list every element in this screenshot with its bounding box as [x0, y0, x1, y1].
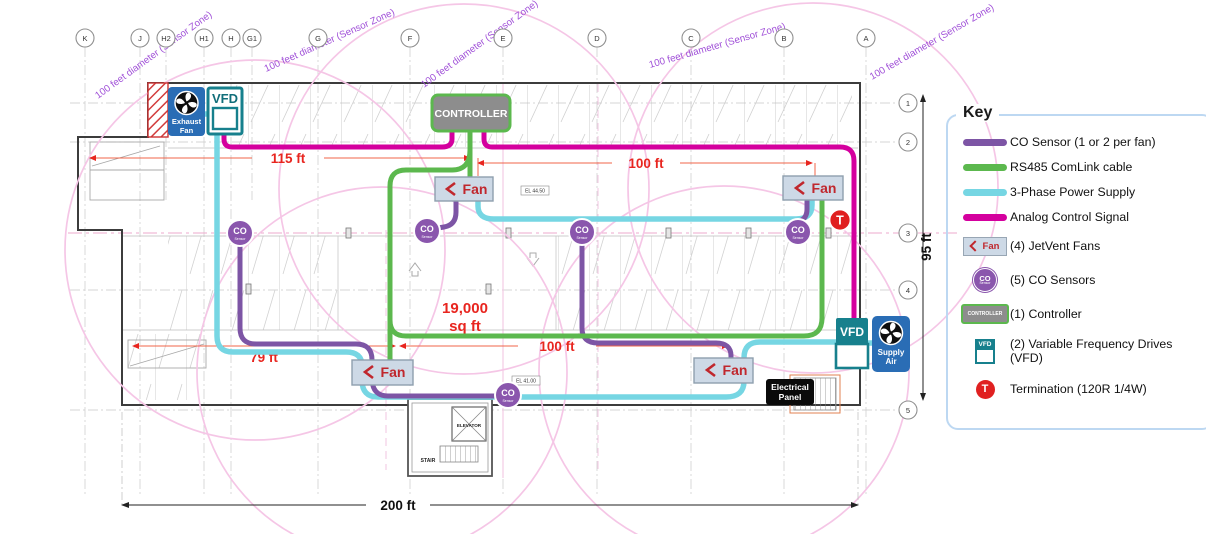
supply-air-unit: Supply Air: [872, 316, 910, 372]
svg-text:Panel: Panel: [779, 392, 802, 402]
svg-text:A: A: [863, 34, 868, 43]
analog-swatch: [963, 214, 1007, 221]
svg-text:100 feet diameter (Sensor Zone: 100 feet diameter (Sensor Zone): [419, 0, 540, 90]
vfd-box-1: VFD: [208, 88, 242, 134]
svg-text:EL 41.00: EL 41.00: [516, 379, 536, 385]
svg-text:H: H: [228, 34, 233, 43]
svg-text:CO: CO: [575, 225, 589, 235]
fan-icon: Fan: [963, 237, 1007, 256]
svg-text:H2: H2: [161, 34, 171, 43]
legend-item-vfd: VFD (2) Variable Frequency Drives (VFD): [960, 330, 1206, 372]
svg-text:Air: Air: [885, 357, 896, 366]
svg-text:F: F: [408, 34, 413, 43]
jetvent-fan-3: Fan: [352, 360, 413, 385]
traffic-arrow-icons: [409, 253, 539, 276]
svg-text:CONTROLLER: CONTROLLER: [435, 108, 508, 120]
electrical-panel: Electrical Panel: [766, 379, 814, 405]
exhaust-shaft: [148, 83, 168, 137]
legend-item-analog: Analog Control Signal: [960, 205, 1206, 230]
svg-text:Fan: Fan: [723, 362, 748, 378]
svg-text:2: 2: [906, 138, 910, 147]
svg-text:Sensor: Sensor: [234, 237, 246, 241]
controller-icon: CONTROLLER: [961, 304, 1009, 324]
svg-text:4: 4: [906, 286, 910, 295]
area-label-line2: sq ft: [449, 318, 481, 335]
svg-text:G1: G1: [247, 34, 257, 43]
svg-text:5: 5: [906, 406, 910, 415]
dim-95ft: 95 ft: [919, 233, 934, 261]
svg-text:J: J: [138, 34, 142, 43]
svg-text:CO: CO: [501, 388, 515, 398]
termination-icon: T: [976, 380, 995, 399]
co-sensor-5: CO Sensor: [495, 382, 521, 408]
svg-text:1: 1: [906, 99, 910, 108]
legend-item-co-cable: CO Sensor (1 or 2 per fan): [960, 130, 1206, 155]
svg-text:100 feet diameter (Sensor Zone: 100 feet diameter (Sensor Zone): [868, 2, 996, 82]
svg-text:Fan: Fan: [463, 181, 488, 197]
svg-text:EL 44.50: EL 44.50: [525, 189, 545, 195]
co-cable-swatch: [963, 139, 1007, 146]
svg-text:Sensor: Sensor: [576, 236, 588, 240]
key-panel: Key CO Sensor (1 or 2 per fan) RS485 Com…: [946, 114, 1206, 430]
jetvent-fan-4: Fan: [694, 358, 753, 383]
rs485-swatch: [963, 164, 1007, 171]
co-sensor-icon: COSensor: [973, 268, 997, 292]
vfd-icon: VFD: [975, 339, 995, 364]
svg-text:T: T: [836, 214, 844, 228]
dim-100ft-top: 100 ft: [628, 156, 664, 171]
termination-resistor: T: [830, 210, 851, 231]
elevator-stair-core: ELEVATOR STAIR: [408, 399, 492, 476]
co-sensor-4: CO Sensor: [785, 219, 811, 245]
dim-115ft: 115 ft: [271, 151, 306, 166]
legend-item-power: 3-Phase Power Supply: [960, 180, 1206, 205]
svg-text:Electrical: Electrical: [771, 382, 809, 392]
vfd-box-2: VFD: [836, 318, 868, 368]
dim-200ft: 200 ft: [380, 498, 416, 513]
svg-text:Supply: Supply: [878, 348, 905, 357]
legend-item-termination: T Termination (120R 1/4W): [960, 372, 1206, 406]
svg-text:CO: CO: [791, 225, 805, 235]
svg-text:K: K: [82, 34, 87, 43]
svg-text:VFD: VFD: [212, 91, 238, 106]
svg-text:E: E: [500, 34, 505, 43]
stair-label: STAIR: [421, 458, 436, 464]
ventilation-plan-page: ELEVATOR STAIR 100 feet diameter (Sensor…: [0, 0, 1206, 534]
svg-text:Sensor: Sensor: [792, 236, 804, 240]
power-swatch: [963, 189, 1007, 196]
svg-text:B: B: [781, 34, 786, 43]
svg-text:G: G: [315, 34, 321, 43]
svg-text:VFD: VFD: [840, 325, 864, 339]
svg-text:Sensor: Sensor: [421, 235, 433, 239]
co-sensor-3: CO Sensor: [569, 219, 595, 245]
svg-text:D: D: [594, 34, 600, 43]
key-title: Key: [956, 104, 999, 122]
chevron-left-icon: [969, 240, 980, 251]
area-label-line1: 19,000: [442, 300, 488, 317]
co-sensor-1: CO Sensor: [227, 220, 253, 246]
dim-100ft-bottom: 100 ft: [539, 339, 575, 354]
svg-text:100 feet diameter (Sensor Zone: 100 feet diameter (Sensor Zone): [263, 7, 397, 75]
svg-text:Fan: Fan: [180, 126, 194, 135]
jetvent-fan-1: Fan: [435, 177, 493, 201]
legend-item-controller: CONTROLLER (1) Controller: [960, 298, 1206, 330]
svg-text:CO: CO: [420, 224, 434, 234]
svg-text:C: C: [688, 34, 694, 43]
svg-text:Fan: Fan: [381, 364, 406, 380]
legend-item-co-sensors: COSensor (5) CO Sensors: [960, 262, 1206, 298]
svg-text:Sensor: Sensor: [502, 399, 514, 403]
legend-item-fans: Fan (4) JetVent Fans: [960, 230, 1206, 262]
controller-box: CONTROLLER: [432, 95, 510, 131]
svg-text:H1: H1: [199, 34, 209, 43]
elevator-label: ELEVATOR: [457, 423, 482, 428]
legend-item-rs485: RS485 ComLink cable: [960, 155, 1206, 180]
jetvent-fan-2: Fan: [783, 176, 843, 200]
svg-text:Fan: Fan: [812, 180, 837, 196]
exhaust-fan-unit: Exhaust Fan: [168, 87, 205, 136]
svg-text:3: 3: [906, 229, 910, 238]
svg-text:CO: CO: [233, 226, 247, 236]
svg-text:Exhaust: Exhaust: [172, 117, 202, 126]
co-sensor-2: CO Sensor: [414, 218, 440, 244]
